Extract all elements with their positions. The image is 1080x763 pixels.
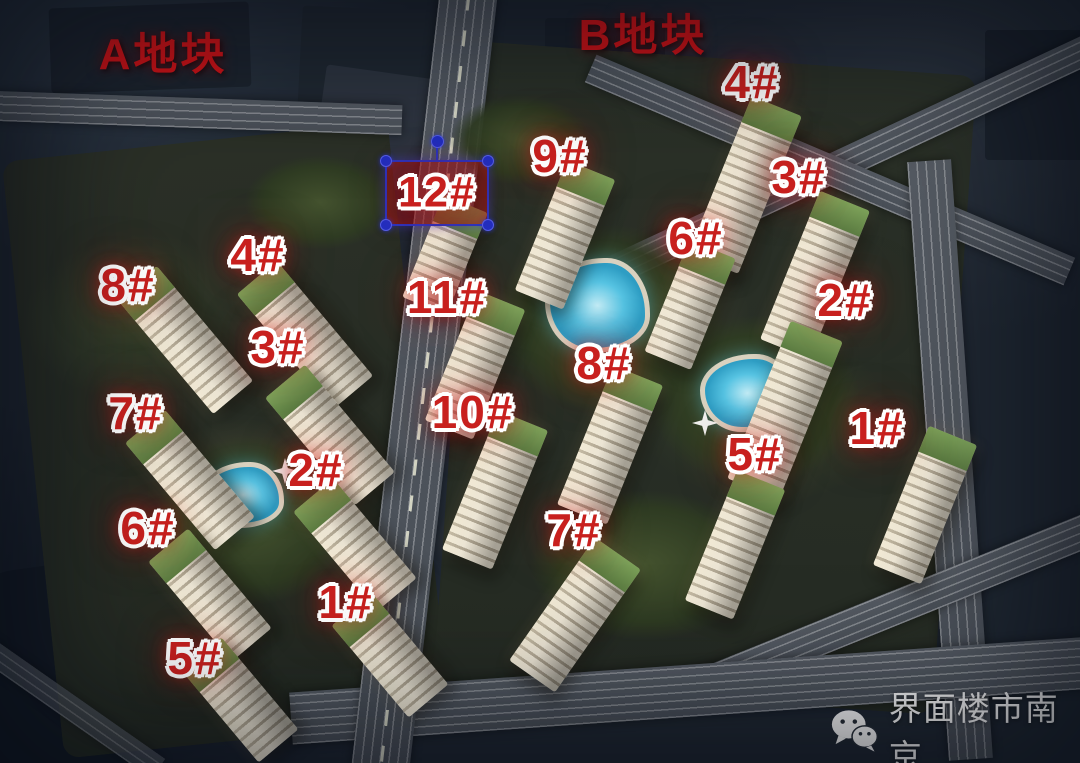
resize-handle-top-right[interactable]: [482, 155, 494, 167]
building-label-b-7: 7#: [546, 507, 601, 553]
building-label-b-9: 9#: [532, 133, 587, 179]
building-label-b-2: 2#: [817, 277, 872, 323]
selection-box[interactable]: 12#: [385, 160, 489, 226]
building-label-a-8: 8#: [100, 262, 155, 308]
resize-handle-top-left[interactable]: [380, 155, 392, 167]
resize-handle-bottom-right[interactable]: [482, 219, 494, 231]
wechat-icon: [830, 707, 879, 754]
building-label-b-4: 4#: [724, 59, 779, 105]
building-label-b-12: 12#: [398, 172, 476, 215]
building-label-a-1: 1#: [318, 579, 373, 625]
building-label-a-6: 6#: [120, 505, 175, 551]
building-label-a-3: 3#: [250, 324, 305, 370]
building-label-a-4: 4#: [230, 232, 285, 278]
watermark: 界面楼市南京: [830, 682, 1080, 763]
rotation-handle-stem: [436, 146, 438, 162]
building-label-b-6: 6#: [668, 215, 723, 261]
rotation-handle[interactable]: [431, 135, 444, 148]
building-label-a-5: 5#: [167, 635, 222, 681]
resize-handle-bottom-left[interactable]: [380, 219, 392, 231]
building-label-a-7: 7#: [108, 390, 163, 436]
building-label-b-8: 8#: [576, 340, 631, 386]
building-label-b-3: 3#: [771, 154, 826, 200]
building-label-b-1: 1#: [849, 405, 904, 451]
building-label-b-5: 5#: [727, 431, 782, 477]
plot-a-label: A地块: [99, 33, 228, 77]
aerial-site-photo: A地块 B地块 8# 4# 3# 7# 2# 6# 1# 5# 9# 11# 1…: [0, 0, 1080, 763]
watermark-text: 界面楼市南京: [889, 682, 1080, 763]
building-label-b-10: 10#: [432, 389, 515, 435]
plot-b-label: B地块: [579, 14, 708, 58]
building-label-b-11: 11#: [407, 274, 487, 320]
building-label-a-2: 2#: [288, 447, 343, 493]
